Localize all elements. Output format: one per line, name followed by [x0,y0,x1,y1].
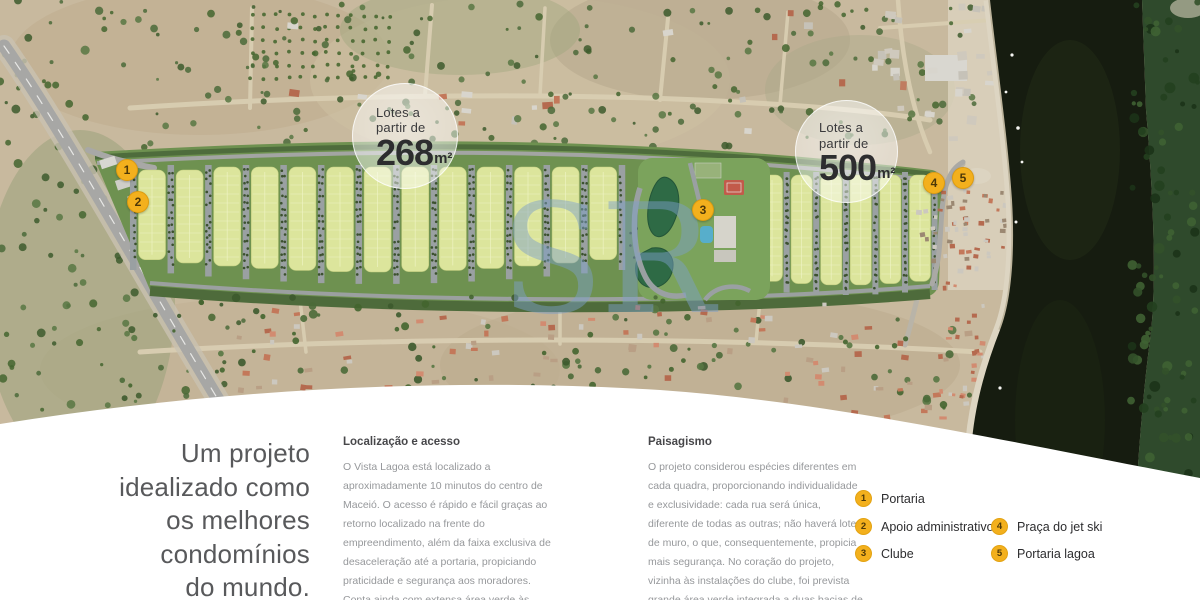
section-localizacao-body: O Vista Lagoa está localizado a aproxima… [343,458,558,600]
map-marker-apoio: 2 [127,191,149,213]
headline-line: os melhores [58,504,310,538]
watermark-logo: SR [500,171,719,348]
section-paisagismo-title: Paisagismo [648,436,863,448]
legend-item-apoio: 2 Apoio administrativo [855,518,994,535]
map-marker-praca-jet-ski: 4 [923,172,945,194]
badge-268-unit: m² [434,150,452,167]
headline-line: idealizado como [58,471,310,505]
badge-500-value: 500 [819,153,876,183]
map-marker-portaria-lagoa: 5 [952,167,974,189]
legend-label-1: Portaria [881,492,925,506]
legend-item-portaria: 1 Portaria [855,490,925,507]
headline: Um projeto idealizado como os melhores c… [58,437,310,600]
headline-line: do mundo. [58,571,310,600]
headline-line: Um projeto [58,437,310,471]
legend-badge-3: 3 [855,545,872,562]
legend-badge-1: 1 [855,490,872,507]
headline-line: condomínios [58,538,310,572]
map-marker-portaria: 1 [116,159,138,181]
section-paisagismo-body: O projeto considerou espécies diferentes… [648,458,863,600]
masterplan-page: SR Lotes a partir de 268 m² Lotes a part… [0,0,1200,600]
badge-268-value: 268 [376,138,433,168]
legend-badge-2: 2 [855,518,872,535]
legend-badge-5: 5 [991,545,1008,562]
badge-268-prefix-1: Lotes a [376,105,458,121]
legend-label-5: Portaria lagoa [1017,547,1095,561]
legend-badge-4: 4 [991,518,1008,535]
section-paisagismo: Paisagismo O projeto considerou espécies… [648,436,863,600]
lot-size-badge-268: Lotes a partir de 268 m² [352,83,458,189]
legend-item-portaria-lagoa: 5 Portaria lagoa [991,545,1095,562]
section-localizacao: Localização e acesso O Vista Lagoa está … [343,436,558,600]
section-localizacao-title: Localização e acesso [343,436,558,448]
legend-item-clube: 3 Clube [855,545,914,562]
map-marker-clube: 3 [692,199,714,221]
badge-500-unit: m² [877,165,895,182]
lot-size-badge-500: Lotes a partir de 500 m² [795,100,898,203]
badge-500-prefix-1: Lotes a [819,120,898,136]
legend-item-praca-jet-ski: 4 Praça do jet ski [991,518,1102,535]
legend-label-3: Clube [881,547,914,561]
legend-label-4: Praça do jet ski [1017,520,1102,534]
legend-label-2: Apoio administrativo [881,520,994,534]
